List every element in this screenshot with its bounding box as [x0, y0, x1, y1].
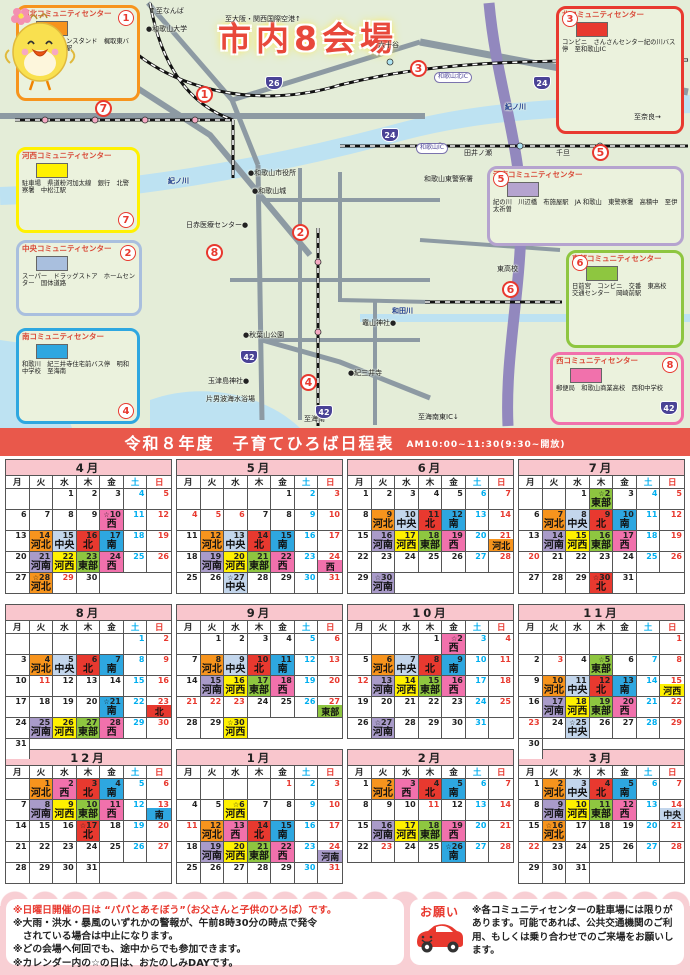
day-cell: 14河南 [543, 531, 567, 552]
day-number: 1 [434, 635, 440, 643]
day-cell [100, 863, 124, 883]
day-cell: 19東部 [590, 697, 614, 718]
day-number: 18 [428, 532, 439, 540]
map-label: 竈山神社● [362, 320, 396, 327]
day-cell [295, 718, 319, 738]
day-number: 8 [676, 656, 682, 664]
day-cell: 22 [519, 842, 543, 863]
dow-cell: 日 [318, 621, 342, 634]
dow-cell: 水 [224, 476, 248, 489]
day-cell: 15南 [271, 821, 295, 842]
day-number: 12 [210, 532, 221, 540]
day-number: 3 [481, 635, 487, 643]
day-number: 31 [86, 864, 97, 872]
day-cell: 14 [6, 821, 30, 842]
day-cell: 22 [124, 697, 148, 718]
day-number: 16 [528, 698, 539, 706]
day-number: 27 [234, 864, 245, 872]
day-cell: 3西 [395, 779, 419, 800]
venue-label: 河北 [372, 665, 395, 676]
venue-label: 北 [590, 583, 613, 594]
dow-cell: 土 [124, 766, 148, 779]
map-marker: 2 [292, 224, 309, 241]
day-number: 11 [110, 801, 121, 809]
day-cell: ☆30北 [590, 573, 614, 593]
notes-box-right: お願い ※各コミュニティセンターの駐車場には限りがあります。可能であれば、公共交… [410, 899, 684, 965]
day-number: 13 [646, 801, 657, 809]
venue-label: 中央 [566, 520, 589, 531]
day-cell [613, 863, 637, 883]
venue-label: 河西 [660, 684, 684, 696]
day-number: 13 [329, 656, 340, 664]
day-cell: 15河南 [201, 676, 225, 697]
day-cell: 27東部 [77, 718, 101, 739]
day-number: 8 [534, 801, 540, 809]
week-row: 45☆6河西78910 [177, 800, 342, 821]
note-line: ※どの会場へ何回でも、途中からでも参加できます。 [13, 943, 397, 956]
day-number: 27 [623, 719, 634, 727]
day-cell: 31 [318, 573, 342, 593]
day-number: 4 [434, 780, 440, 788]
day-number: 5 [310, 635, 316, 643]
venue-label: 東部 [590, 499, 613, 510]
day-cell [100, 573, 124, 593]
venue-label: 中央 [224, 583, 247, 594]
day-number: 3 [410, 490, 416, 498]
day-number: 24 [475, 698, 486, 706]
day-cell: 24 [566, 842, 590, 863]
dow-cell: 月 [519, 766, 543, 779]
dow-cell: 木 [419, 621, 443, 634]
day-number: 11 [39, 677, 50, 685]
venue-label: 北 [248, 665, 271, 676]
day-number: 9 [163, 656, 169, 664]
day-number: 19 [63, 698, 74, 706]
day-cell: 6 [224, 510, 248, 531]
day-number: 6 [628, 656, 634, 664]
star-icon: ☆ [103, 698, 109, 706]
month-calendar: 12月月火水木金土日1河北2西3北4南5678河南9河西10東部11西1213南… [5, 749, 172, 884]
day-cell: 19河南 [201, 552, 225, 573]
dow-cell: 木 [248, 621, 272, 634]
map-label: 六十谷 [378, 42, 399, 49]
day-cell: 9北 [590, 510, 614, 531]
venue-label: 北 [77, 789, 100, 800]
week-row: 1☆2西34 [348, 634, 513, 655]
day-cell: 4 [177, 510, 201, 531]
day-number: 6 [21, 511, 27, 519]
venue-label: 河西 [224, 810, 247, 821]
star-icon: ☆ [445, 843, 451, 851]
day-cell: 27 [519, 573, 543, 593]
day-cell: 9 [519, 676, 543, 697]
inset-name: 北コミュニティセンター [562, 11, 678, 20]
dow-cell: 土 [295, 621, 319, 634]
day-cell [566, 739, 590, 759]
day-number: 24 [86, 843, 97, 851]
venue-label: 河西 [53, 562, 76, 573]
day-cell: 5中央 [53, 655, 77, 676]
dow-cell: 日 [489, 766, 513, 779]
day-number: 22 [528, 843, 539, 851]
dow-row: 月火水木金土日 [348, 766, 513, 779]
venue-label: 河南 [30, 562, 53, 573]
dow-cell: 火 [372, 621, 396, 634]
day-number: ☆25 [569, 719, 586, 727]
day-number: 22 [357, 843, 368, 851]
day-cell: 18 [637, 531, 661, 552]
day-cell: 20 [466, 531, 490, 552]
day-cell: 22 [30, 842, 54, 863]
day-cell: 19 [660, 531, 684, 552]
day-cell: 16 [295, 821, 319, 842]
dow-cell: 日 [147, 476, 171, 489]
day-cell: 25 [419, 552, 443, 573]
day-cell: 2 [519, 655, 543, 676]
day-number: ☆16 [546, 822, 563, 830]
day-cell: 5 [124, 779, 148, 800]
day-cell: 10東部 [77, 800, 101, 821]
star-icon: ☆ [103, 511, 109, 519]
day-cell [100, 739, 124, 759]
day-cell: 30 [53, 863, 77, 883]
day-cell: ☆26南 [442, 842, 466, 862]
day-cell: 14 [637, 676, 661, 697]
day-number: 9 [558, 801, 564, 809]
day-cell [566, 634, 590, 655]
notes-box-left: ※日曜日開催の日は “パパとあそぼう”（お父さんと子供のひろば）です。※大雨・洪… [6, 899, 404, 965]
inset-box: 3北コミュニティセンターコンビニ さんさんセンター紀の川バス停 至和歌山IC [556, 6, 684, 134]
dow-cell: 木 [77, 476, 101, 489]
day-number: 22 [210, 698, 221, 706]
day-number: 18 [186, 553, 197, 561]
day-number: 19 [304, 677, 315, 685]
day-cell: 27 [6, 573, 30, 593]
day-cell [660, 739, 684, 759]
day-cell: 10北 [248, 655, 272, 676]
day-cell: 17 [318, 531, 342, 552]
week-row: 25262728293031 [177, 863, 342, 883]
day-number: 11 [428, 801, 439, 809]
day-number: 12 [452, 511, 463, 519]
day-cell: 1 [660, 634, 684, 655]
day-cell: 25 [489, 697, 513, 718]
day-number: 24 [576, 843, 587, 851]
dow-row: 月火水木金土日 [177, 476, 342, 489]
day-cell [30, 634, 54, 655]
day-number: 22 [281, 553, 292, 561]
day-number: 3 [115, 490, 121, 498]
day-number: 2 [310, 780, 316, 788]
day-cell: 22 [419, 697, 443, 718]
day-cell: 28 [6, 863, 30, 883]
day-cell: 5南 [613, 779, 637, 800]
day-number: 15 [281, 822, 292, 830]
day-cell: 8河南 [30, 800, 54, 821]
day-number: 29 [210, 719, 221, 727]
day-cell [147, 573, 171, 593]
venue-label: 南 [442, 852, 465, 863]
day-cell: 3 [613, 489, 637, 510]
day-number: 3 [410, 780, 416, 788]
day-number: 25 [186, 864, 197, 872]
map-marker: 1 [196, 86, 213, 103]
day-cell: 25 [177, 573, 201, 593]
day-cell: 15 [519, 821, 543, 842]
week-row: 21222324252627東部 [177, 697, 342, 718]
day-number: 15 [528, 822, 539, 830]
inset-landmarks: コンビニ さんさんセンター紀の川バス停 至和歌山IC [562, 39, 678, 55]
day-number: 18 [500, 677, 511, 685]
day-number: 8 [581, 511, 587, 519]
map-marker: 7 [95, 100, 112, 117]
dow-cell: 木 [419, 766, 443, 779]
day-number: 30 [304, 574, 315, 582]
week-row: 1314河南15河西16東部17西1819 [519, 531, 684, 552]
day-number: 7 [410, 656, 416, 664]
venue-label: 南 [442, 520, 465, 531]
star-icon: ☆ [451, 635, 457, 643]
day-number: 13 [381, 677, 392, 685]
week-row: 1河北2西3北4南56 [6, 779, 171, 800]
day-cell: 17 [6, 697, 30, 718]
day-number: 18 [646, 532, 657, 540]
day-cell: 2 [295, 779, 319, 800]
inset-number: 6 [572, 255, 588, 271]
day-cell: 14河西 [395, 676, 419, 697]
day-number: ☆27 [227, 574, 244, 582]
day-number: 28 [500, 843, 511, 851]
day-number: 2 [68, 780, 74, 788]
day-cell: 27 [466, 552, 490, 573]
day-cell: 26 [613, 842, 637, 863]
day-cell: 20 [519, 552, 543, 573]
day-number: 23 [234, 698, 245, 706]
day-cell: 16河西 [224, 676, 248, 697]
week-row: 20212223242526 [519, 552, 684, 573]
map-label: 田井ノ瀬 [464, 150, 492, 157]
week-row: 89河南10河西11東部12西1314中央 [519, 800, 684, 821]
day-cell: 6 [637, 779, 661, 800]
day-cell [248, 718, 272, 738]
day-number: 11 [599, 801, 610, 809]
month-header: 4月 [6, 460, 171, 476]
day-cell: 29 [30, 863, 54, 883]
day-cell: 11西 [100, 800, 124, 821]
day-cell: 22西 [271, 842, 295, 863]
day-cell: 29 [53, 573, 77, 593]
onegai-label: お願い [420, 903, 459, 920]
day-number: 18 [281, 677, 292, 685]
day-number: 16 [381, 822, 392, 830]
day-number: 29 [281, 864, 292, 872]
inset-building [586, 266, 618, 281]
dow-cell: 木 [77, 766, 101, 779]
day-cell: 5 [442, 489, 466, 510]
map-label: ●秋葉山公園 [243, 332, 284, 339]
day-cell: 15東部 [419, 676, 443, 697]
day-number: 21 [15, 843, 26, 851]
day-cell: 3 [466, 634, 490, 655]
week-row: 22232425262728 [519, 842, 684, 863]
dow-cell: 土 [124, 621, 148, 634]
day-number: 1 [363, 490, 369, 498]
map-label: 至奈良→ [634, 114, 661, 121]
day-cell: 11 [124, 510, 148, 531]
venue-label: 河南 [372, 583, 395, 594]
day-cell: 12西 [613, 800, 637, 821]
banner-title: 令和８年度 子育てひろば日程表 [125, 430, 395, 454]
week-row: 78河南9河西10東部11西1213南 [6, 800, 171, 821]
day-number: 23 [528, 719, 539, 727]
day-cell [637, 573, 661, 593]
day-cell: 18 [124, 531, 148, 552]
day-cell: 8中央 [566, 510, 590, 531]
venue-label: 北 [77, 541, 100, 552]
day-cell: 22 [348, 842, 372, 862]
day-number: 22 [576, 553, 587, 561]
route-number-badge: 26 [265, 76, 283, 90]
day-number: ☆30 [227, 719, 244, 727]
day-cell: 28 [248, 573, 272, 593]
day-cell: 7 [6, 800, 30, 821]
day-number: 26 [671, 553, 682, 561]
day-number: ☆6 [233, 801, 245, 809]
venue-label: 中央 [395, 520, 418, 531]
day-cell: ☆16河北 [543, 821, 567, 842]
venue-label: 河西 [566, 541, 589, 552]
day-cell: 19 [53, 697, 77, 718]
day-number: 21 [257, 843, 268, 851]
day-cell: 12南 [442, 510, 466, 531]
day-number: 21 [500, 822, 511, 830]
day-cell: 21 [637, 697, 661, 718]
venue-label: 西 [442, 644, 465, 655]
week-row: 29☆30河南 [348, 573, 513, 593]
inset-building [507, 182, 539, 197]
venue-label: 河北 [201, 541, 224, 552]
venue-label: 東部 [419, 686, 442, 697]
day-cell [660, 863, 684, 883]
dow-cell: 金 [442, 766, 466, 779]
week-row: 12河北3中央4北5南67 [519, 779, 684, 800]
day-cell: 2 [77, 489, 101, 510]
day-cell [489, 718, 513, 738]
day-cell: 5 [348, 655, 372, 676]
month-header: 6月 [348, 460, 513, 476]
day-cell: 29 [124, 718, 148, 739]
venue-label: 北 [147, 705, 171, 717]
day-cell: 29 [201, 718, 225, 738]
day-number: 22 [671, 698, 682, 706]
day-cell: 9河南 [543, 800, 567, 821]
dow-row: 月火水木金土日 [177, 766, 342, 779]
day-number: 17 [405, 532, 416, 540]
day-number: 10 [86, 801, 97, 809]
day-cell [372, 634, 396, 655]
day-cell: 29 [348, 573, 372, 593]
month-calendar: 11月月火水木金土日1234☆5東部678910河北11中央12北13南1415… [518, 604, 685, 760]
venue-label: 河北 [543, 686, 566, 697]
venue-label: 北 [590, 686, 613, 697]
month-calendar: 3月月火水木金土日12河北3中央4北5南6789河南10河西11東部12西131… [518, 749, 685, 884]
dow-cell: 土 [637, 766, 661, 779]
day-number: 20 [646, 822, 657, 830]
day-cell: 12 [295, 655, 319, 676]
dow-cell: 金 [100, 621, 124, 634]
day-cell [30, 489, 54, 510]
day-number: 12 [671, 511, 682, 519]
day-number: 20 [234, 843, 245, 851]
dow-cell: 月 [177, 476, 201, 489]
day-cell: 29 [419, 718, 443, 738]
day-cell: 4河北 [30, 655, 54, 676]
inset-number: 3 [562, 11, 578, 27]
dow-cell: 火 [372, 766, 396, 779]
dow-cell: 土 [637, 621, 661, 634]
dow-cell: 水 [395, 621, 419, 634]
day-cell: 13 [6, 531, 30, 552]
day-number: 17 [329, 822, 340, 830]
venue-label: 北 [248, 541, 271, 552]
day-cell: 7 [248, 510, 272, 531]
day-cell: 28西 [100, 718, 124, 739]
inset-building [576, 22, 608, 37]
day-number: 17 [329, 532, 340, 540]
note-line: ※カレンダー内の☆の日は、おたのしみDAYです。 [13, 957, 397, 970]
day-cell: ☆30河南 [372, 573, 396, 593]
day-cell: 3 [543, 655, 567, 676]
day-number: 16 [86, 532, 97, 540]
day-cell: 23 [53, 842, 77, 863]
day-cell: 19 [295, 676, 319, 697]
day-cell: 28 [489, 552, 513, 573]
day-cell [590, 634, 614, 655]
day-number: 14 [110, 677, 121, 685]
day-cell [395, 634, 419, 655]
day-cell: ☆2西 [442, 634, 466, 655]
day-cell: 8 [53, 510, 77, 531]
venue-label: 河南 [372, 686, 395, 697]
day-cell: 12 [442, 800, 466, 821]
day-cell: 28 [395, 718, 419, 738]
day-cell: 13 [466, 510, 490, 531]
day-number: 7 [652, 656, 658, 664]
dow-cell: 月 [177, 766, 201, 779]
day-cell: 27 [147, 842, 171, 863]
inset-name: 中央コミュニティセンター [22, 245, 136, 254]
day-number: 16 [63, 822, 74, 830]
day-number: 14 [39, 532, 50, 540]
day-cell: 14北 [248, 531, 272, 552]
day-number: ☆2 [451, 635, 463, 643]
venue-label: 東部 [248, 562, 271, 573]
day-cell: 19 [147, 531, 171, 552]
day-number: 16 [304, 532, 315, 540]
day-number: 31 [329, 574, 340, 582]
week-row: 1617河南18河西19東部20西2122 [519, 697, 684, 718]
venue-label: 河北 [30, 789, 53, 800]
map-label: 至大阪・関西国際空港↑ [225, 16, 301, 23]
day-cell: 18河西 [566, 697, 590, 718]
day-number: 9 [310, 801, 316, 809]
venue-label: 南 [147, 808, 171, 820]
day-number: 5 [216, 801, 222, 809]
day-cell [100, 634, 124, 655]
day-number: ☆30 [375, 574, 392, 582]
day-number: 17 [623, 532, 634, 540]
day-number: 19 [210, 553, 221, 561]
